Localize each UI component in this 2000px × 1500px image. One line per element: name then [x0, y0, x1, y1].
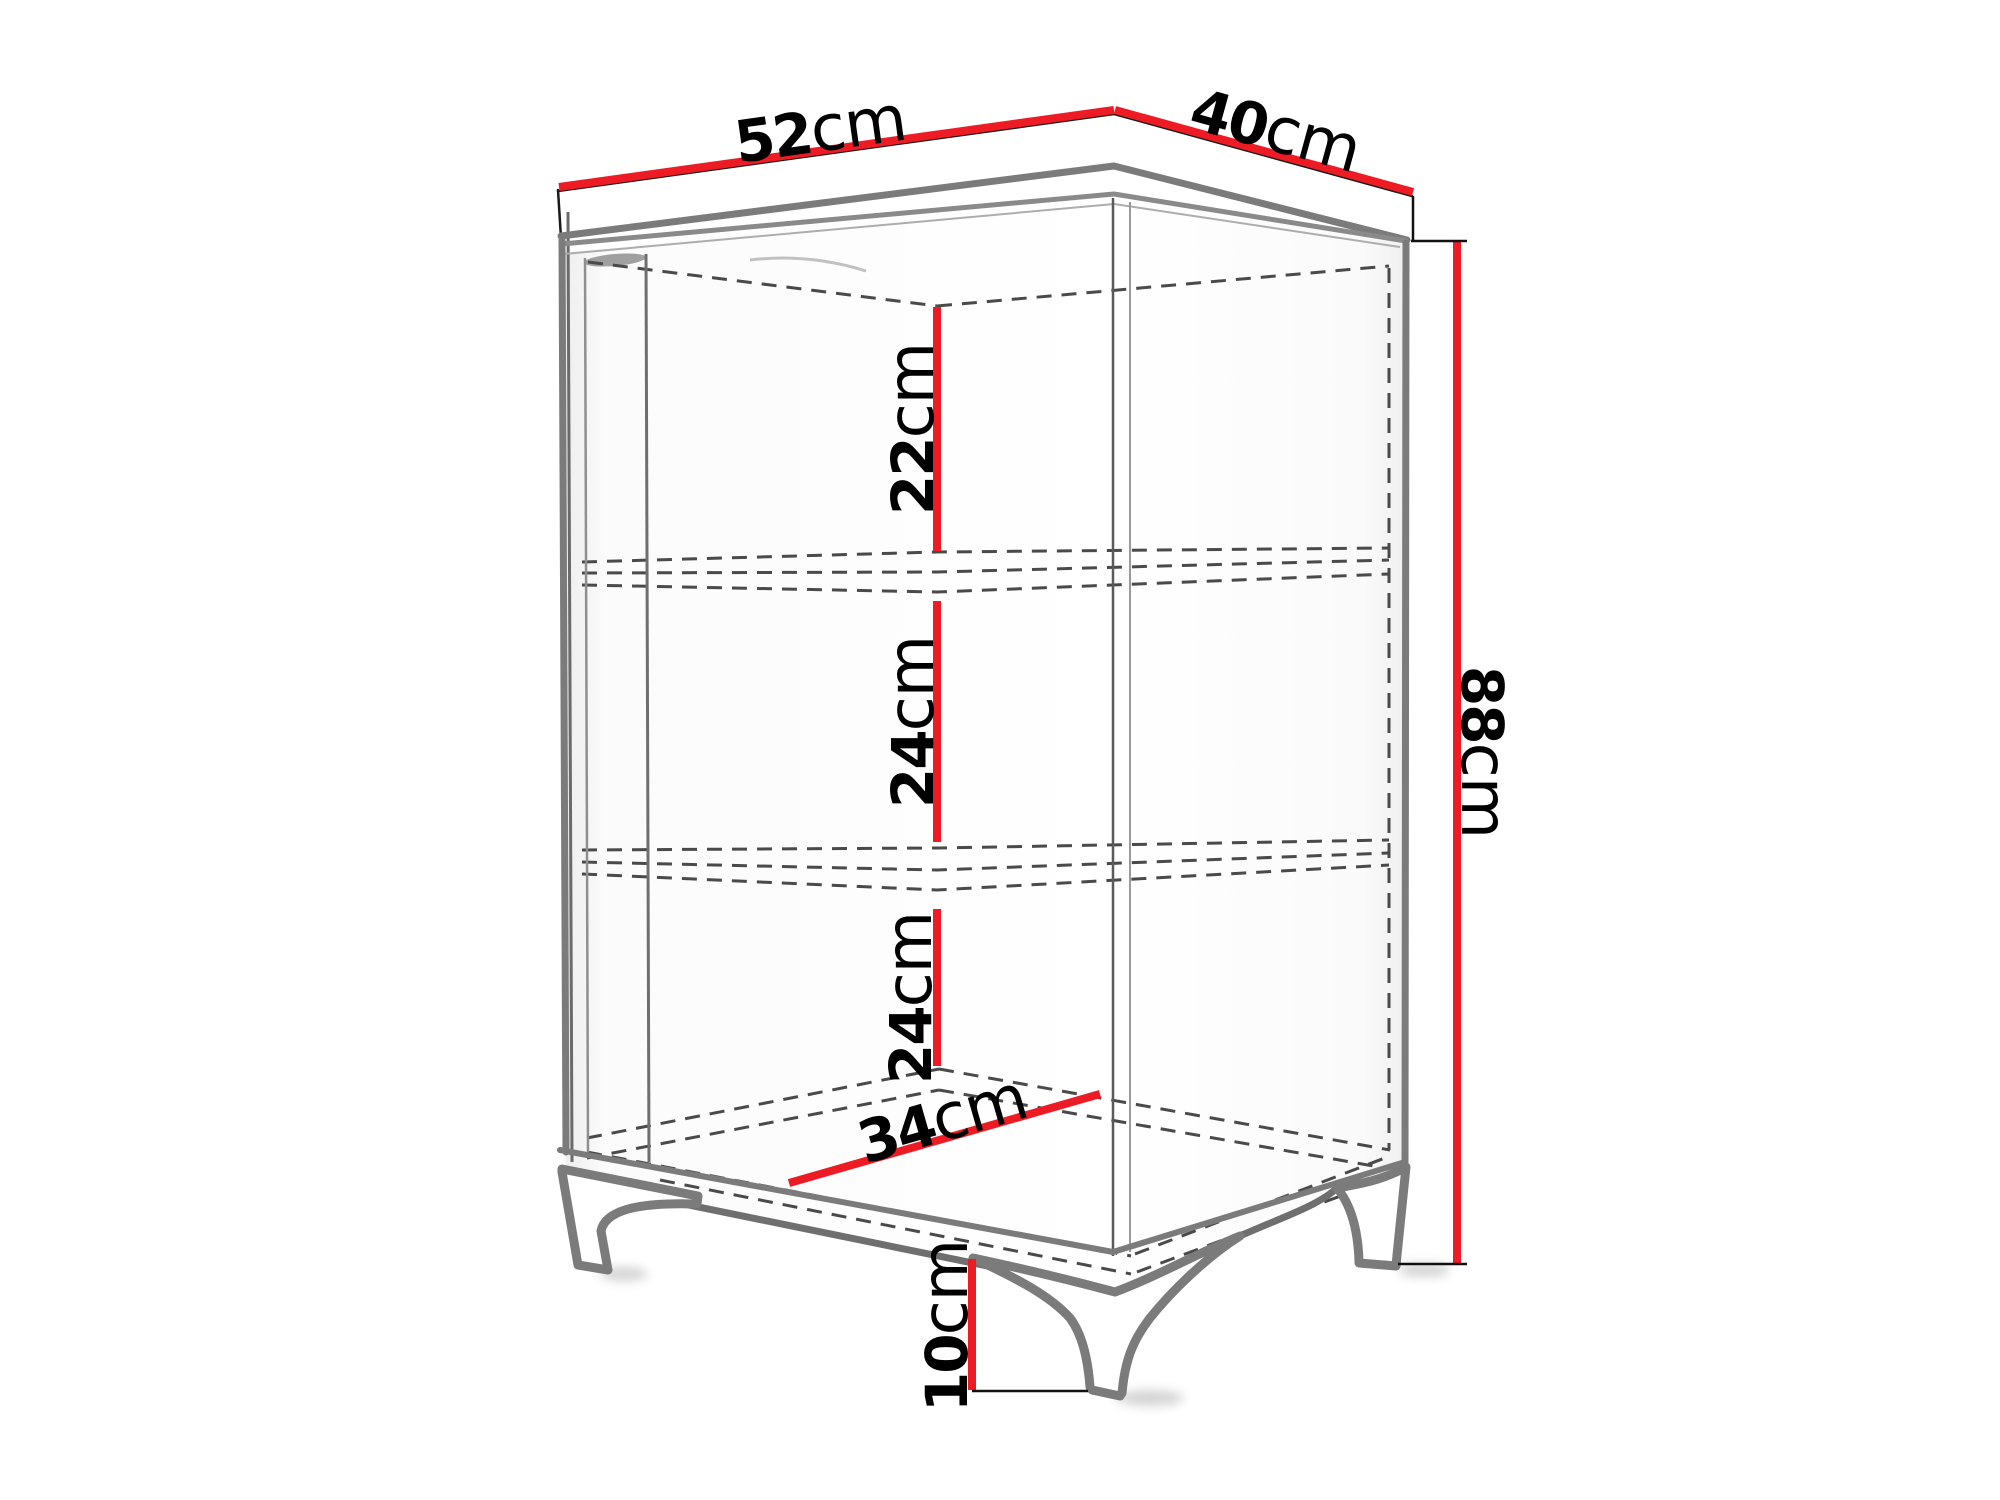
label-10-value: 10 — [913, 1335, 981, 1412]
label-24b-unit: cm — [873, 912, 947, 1008]
label-88-value: 88 — [1448, 666, 1516, 743]
label-22-value: 22 — [879, 438, 947, 515]
right-outer-edge — [1405, 243, 1406, 1165]
diagram-stage: 52cm 40cm 88cm 22cm 24cm 24cm 34cm 10cm — [0, 0, 2000, 1500]
label-24cm-bottom: 24cm — [873, 912, 947, 1084]
label-52-value: 52 — [730, 99, 815, 177]
label-24m-unit: cm — [875, 636, 949, 732]
left-outer-edge — [562, 240, 566, 1152]
label-22-unit: cm — [875, 343, 949, 439]
label-22cm: 22cm — [875, 343, 949, 515]
label-10-unit: cm — [909, 1240, 983, 1336]
cabinet-dimension-diagram: 52cm 40cm 88cm 22cm 24cm 24cm 34cm 10cm — [0, 0, 2000, 1500]
label-10cm: 10cm — [909, 1240, 983, 1412]
label-24m-value: 24 — [879, 731, 947, 808]
label-24b-value: 24 — [877, 1007, 945, 1084]
label-24cm-middle: 24cm — [875, 636, 949, 808]
label-88-unit: cm — [1446, 743, 1520, 839]
label-52-unit: cm — [806, 82, 911, 168]
label-88cm: 88cm — [1446, 666, 1520, 838]
